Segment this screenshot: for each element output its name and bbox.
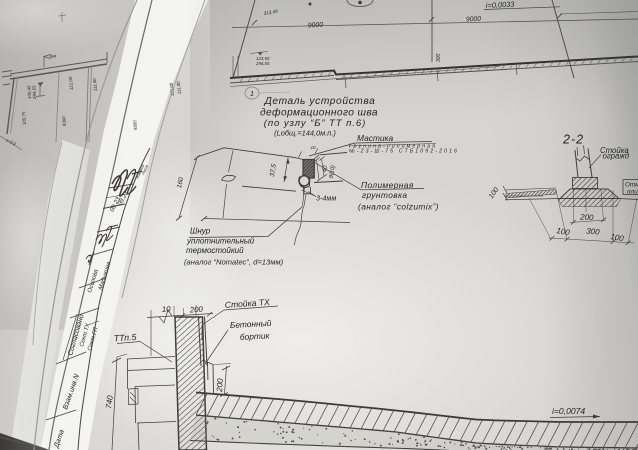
svg-text:(аналог “colzumix”): (аналог “colzumix”) [358, 202, 439, 212]
svg-text:100: 100 [488, 186, 500, 200]
svg-text:10: 10 [162, 304, 172, 314]
svg-text:ТТп.5: ТТп.5 [113, 332, 136, 344]
svg-text:(Lобщ.=144,0м.п.): (Lобщ.=144,0м.п.) [274, 129, 336, 138]
svg-text:2-2: 2-2 [562, 133, 584, 147]
svg-text:Полимерная: Полимерная [361, 180, 414, 190]
svg-text:грунтовка: грунтовка [362, 190, 407, 200]
svg-text:1: 1 [250, 91, 254, 98]
svg-text:37,5: 37,5 [269, 163, 278, 177]
svg-text:Дата: Дата [53, 429, 66, 450]
svg-text:термостойкий: термостойкий [186, 246, 244, 255]
svg-text:Мадыкина: Мадыкина [98, 261, 112, 291]
svg-text:10: 10 [311, 145, 317, 150]
svg-text:9300: 9300 [132, 120, 138, 131]
svg-text:121,00: 121,00 [68, 76, 74, 90]
svg-text:Стойка ТХ: Стойка ТХ [224, 297, 270, 310]
svg-text:200: 200 [189, 305, 204, 315]
svg-text:бортик: бортик [240, 330, 271, 342]
svg-text:111,00: 111,00 [176, 81, 182, 95]
svg-text:100: 100 [556, 226, 571, 237]
svg-text:9000: 9000 [466, 16, 482, 24]
svg-text:294,55: 294,55 [32, 85, 38, 100]
svg-text:(по узлу “Б” ТТ п.6): (по узлу “Б” ТТ п.6) [264, 118, 366, 129]
svg-text:740: 740 [104, 394, 115, 409]
svg-text:уплотнительный: уплотнительный [186, 237, 255, 246]
svg-text:Отм: Отм [625, 182, 638, 189]
svg-text:200: 200 [215, 378, 225, 393]
svg-text:313,49: 313,49 [263, 9, 278, 16]
svg-text:i=0,0074: i=0,0074 [552, 406, 585, 416]
svg-text:300: 300 [436, 53, 442, 62]
svg-text:огражд: огражд [603, 152, 630, 161]
svg-text:3-4мм: 3-4мм [316, 194, 336, 203]
svg-text:пм: пм [50, 53, 56, 59]
svg-text:121,00: 121,00 [169, 82, 175, 96]
svg-text:(аналог “Nomatec”, d=13мм): (аналог “Nomatec”, d=13мм) [184, 258, 284, 267]
svg-text:9000: 9000 [308, 21, 324, 29]
svg-text:160: 160 [176, 176, 185, 189]
svg-text:200: 200 [579, 212, 594, 222]
svg-text:Бетонный: Бетонный [230, 318, 272, 330]
svg-text:Шнур: Шнур [190, 227, 211, 236]
svg-text:Взам.инв.N: Взам.инв.N [62, 373, 81, 411]
svg-text:294,55: 294,55 [255, 61, 270, 66]
svg-text:111,00: 111,00 [92, 78, 98, 92]
svg-text:9300: 9300 [61, 116, 67, 127]
svg-text:деформационного шва: деформационного шва [260, 107, 378, 119]
svg-text:Мастика: Мастика [357, 133, 394, 143]
svg-text:300: 300 [586, 227, 601, 237]
svg-text:Деталь устройства: Деталь устройства [264, 96, 376, 107]
svg-text:100,75: 100,75 [21, 111, 27, 125]
